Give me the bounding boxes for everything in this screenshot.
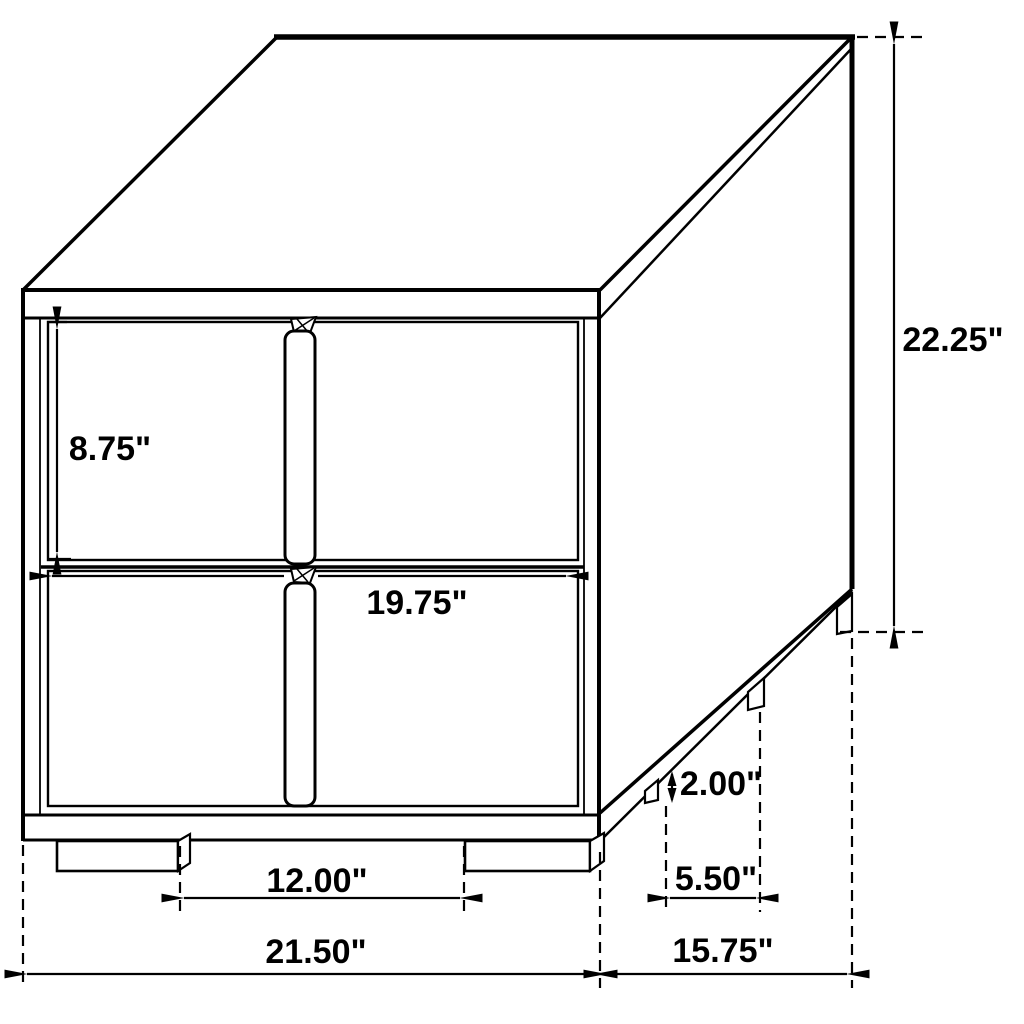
dim-label-overall-depth: 15.75" — [672, 932, 773, 970]
dim-label-overall-height: 22.25" — [902, 321, 1003, 359]
handle-upper — [285, 317, 316, 564]
dim-leg-height: 2.00" — [668, 765, 763, 803]
dim-label-overall-width: 21.50" — [265, 933, 366, 971]
dim-label-leg-height: 2.00" — [680, 765, 762, 803]
dim-label-drawer-height: 8.75" — [69, 430, 151, 468]
dim-label-side-leg-spacing: 5.50" — [675, 860, 757, 898]
dim-label-front-leg-spacing: 12.00" — [266, 862, 367, 900]
side-face — [600, 37, 852, 840]
dim-front-leg-spacing: 12.00" — [180, 846, 464, 912]
dim-label-drawer-width: 19.75" — [366, 584, 467, 622]
dim-overall-height: 22.25" — [840, 37, 1004, 632]
top-face — [23, 37, 855, 318]
nightstand-dimension-diagram: 8.75" 19.75" 22.25" 12.00" 5.50" 2.00" — [0, 0, 1024, 1024]
dim-drawer-height: 8.75" — [47, 322, 151, 559]
base-rail — [23, 815, 600, 840]
side-leg-front — [645, 780, 658, 803]
dimension-diagram-canvas: 8.75" 19.75" 22.25" 12.00" 5.50" 2.00" — [0, 0, 1024, 1024]
side-leg-middle — [748, 678, 764, 710]
handle-lower-bar — [285, 583, 315, 806]
dim-overall-depth: 15.75" — [606, 638, 852, 988]
handle-lower — [285, 567, 316, 806]
handle-upper-bar — [285, 331, 315, 564]
